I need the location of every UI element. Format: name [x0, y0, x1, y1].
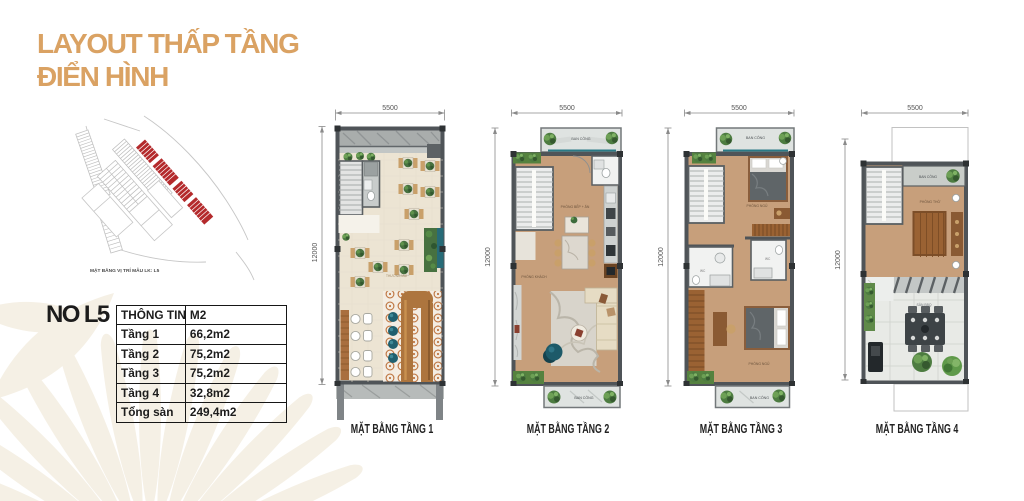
- svg-text:PHÒNG NGỦ: PHÒNG NGỦ: [749, 361, 770, 366]
- svg-text:BAN CÔNG: BAN CÔNG: [574, 395, 593, 400]
- svg-text:PHÒNG THỜ: PHÒNG THỜ: [920, 199, 941, 204]
- svg-text:WC: WC: [700, 269, 706, 273]
- svg-text:12000: 12000: [835, 250, 842, 270]
- svg-text:PHÒNG KHÁCH: PHÒNG KHÁCH: [521, 274, 547, 279]
- svg-text:5500: 5500: [382, 105, 398, 112]
- svg-text:BAN CÔNG: BAN CÔNG: [919, 174, 937, 179]
- svg-text:BAN CÔNG: BAN CÔNG: [746, 135, 765, 140]
- svg-text:WC: WC: [765, 257, 771, 261]
- svg-text:MẶT BẰNG VỊ TRÍ MẪU LK: L5: MẶT BẰNG VỊ TRÍ MẪU LK: L5: [90, 266, 160, 274]
- svg-text:12000: 12000: [312, 243, 319, 263]
- svg-text:5500: 5500: [731, 105, 747, 112]
- svg-text:5500: 5500: [907, 105, 923, 112]
- svg-text:BAN CÔNG: BAN CÔNG: [571, 136, 590, 141]
- svg-text:12000: 12000: [485, 247, 492, 267]
- svg-text:THƯƠNG MẠI: THƯƠNG MẠI: [386, 274, 407, 278]
- svg-text:PHÒNG BẾP + ĂN: PHÒNG BẾP + ĂN: [561, 204, 590, 209]
- svg-text:BAN CÔNG: BAN CÔNG: [750, 395, 769, 400]
- svg-text:12000: 12000: [658, 247, 665, 267]
- svg-text:5500: 5500: [559, 105, 575, 112]
- svg-text:PHÒNG NGỦ: PHÒNG NGỦ: [747, 203, 768, 208]
